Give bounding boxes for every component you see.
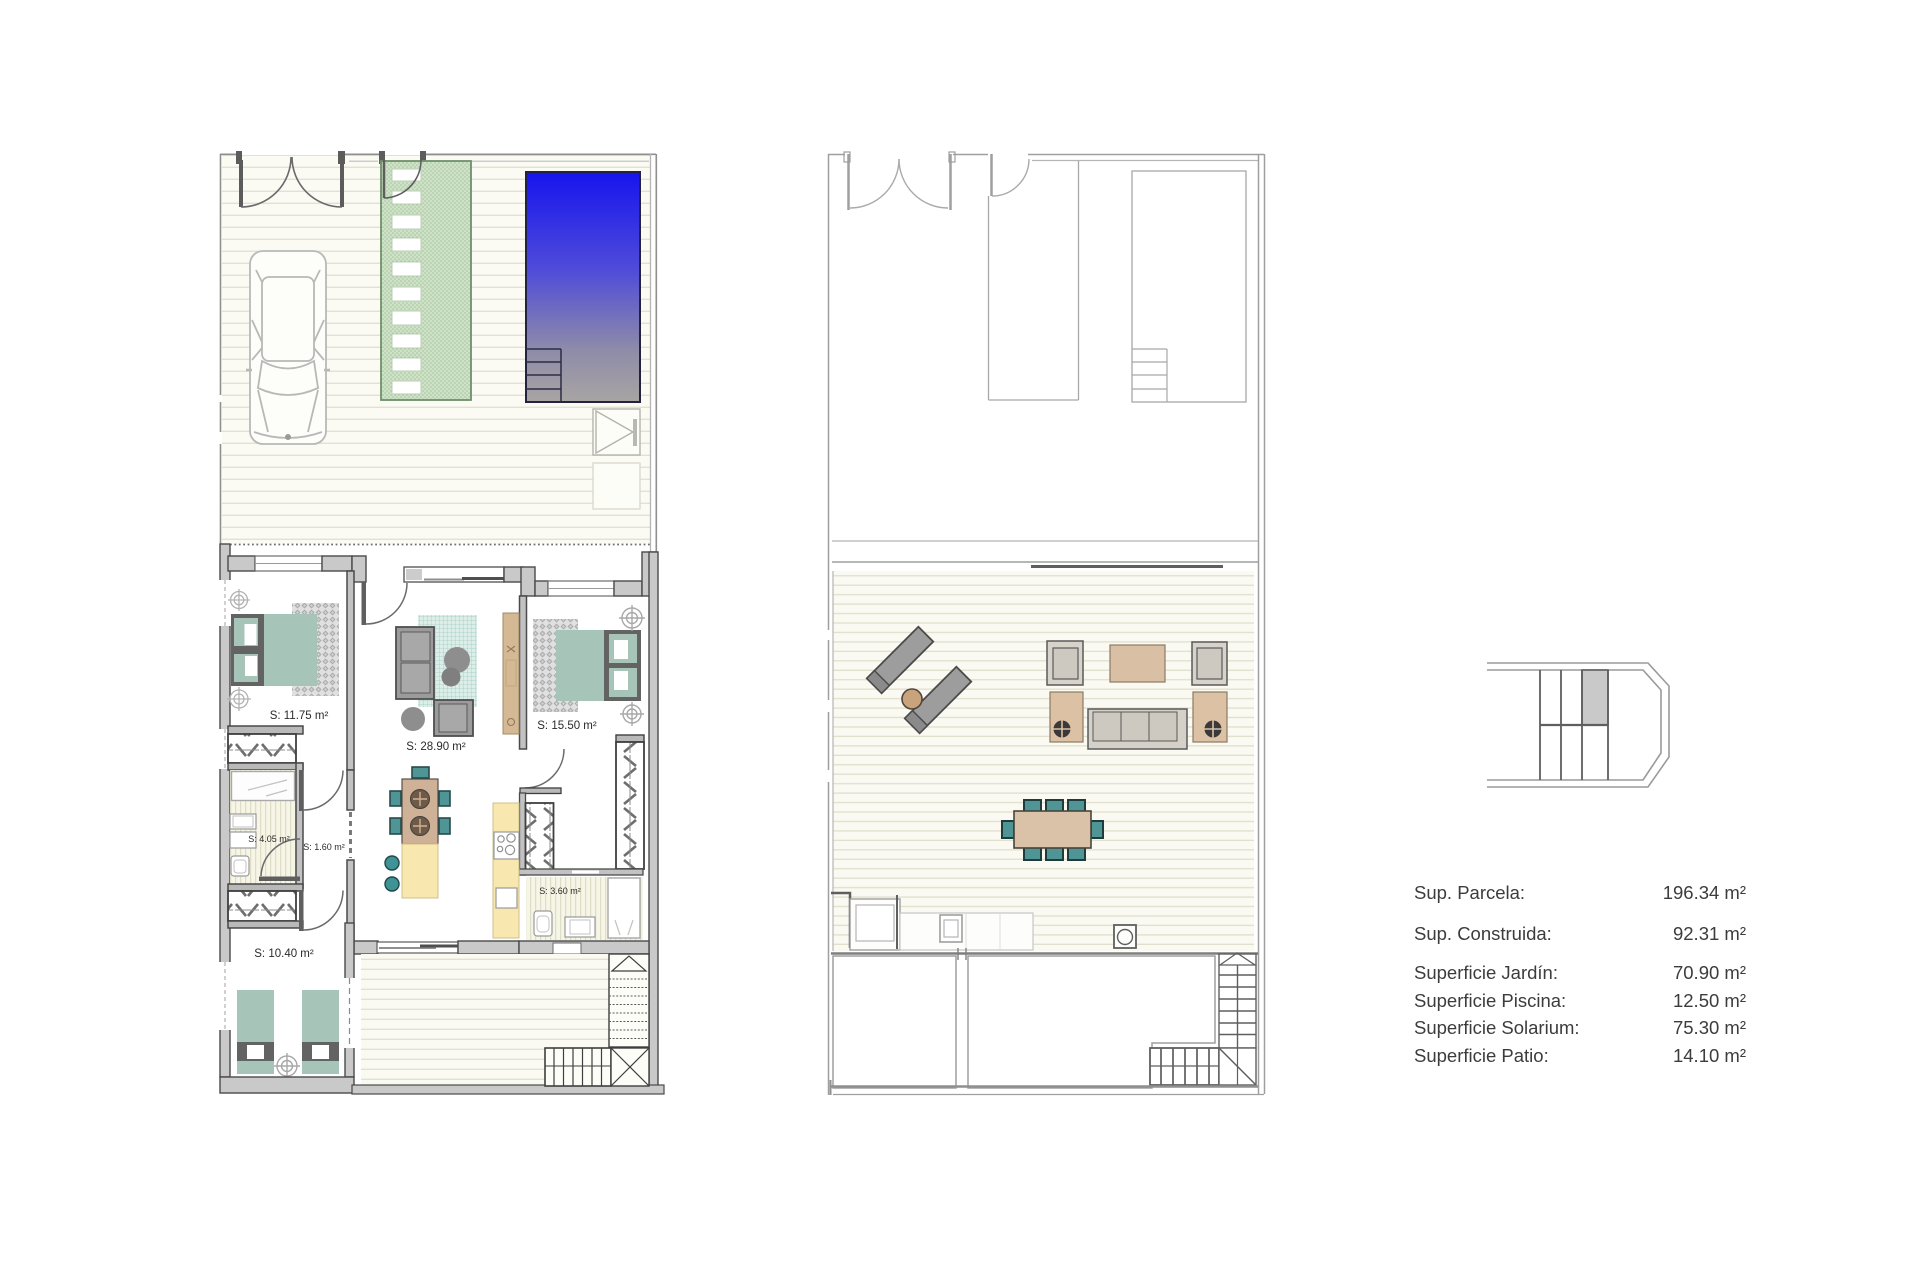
svg-text:75.30 m²: 75.30 m²	[1673, 1017, 1746, 1038]
svg-text:Sup. Construida:: Sup. Construida:	[1414, 923, 1552, 944]
svg-text:S: 15.50 m²: S: 15.50 m²	[537, 720, 597, 732]
svg-text:Superficie Solarium:: Superficie Solarium:	[1414, 1017, 1580, 1038]
svg-text:S: 28.90 m²: S: 28.90 m²	[406, 741, 466, 753]
svg-text:S: 4.05 m²: S: 4.05 m²	[248, 834, 290, 844]
svg-text:Superficie Piscina:: Superficie Piscina:	[1414, 990, 1566, 1011]
svg-text:196.34 m²: 196.34 m²	[1663, 882, 1746, 903]
svg-text:Sup. Parcela:: Sup. Parcela:	[1414, 882, 1525, 903]
svg-text:S: 11.75 m²: S: 11.75 m²	[270, 710, 329, 722]
svg-text:S: 1.60 m²: S: 1.60 m²	[303, 842, 345, 852]
svg-text:Superficie Jardín:: Superficie Jardín:	[1414, 962, 1558, 983]
svg-text:Superficie Patio:: Superficie Patio:	[1414, 1045, 1549, 1066]
svg-text:70.90 m²: 70.90 m²	[1673, 962, 1746, 983]
svg-text:S: 10.40 m²: S: 10.40 m²	[254, 948, 314, 960]
svg-text:S: 3.60 m²: S: 3.60 m²	[539, 886, 581, 896]
svg-text:14.10 m²: 14.10 m²	[1673, 1045, 1746, 1066]
svg-text:92.31 m²: 92.31 m²	[1673, 923, 1746, 944]
svg-text:12.50 m²: 12.50 m²	[1673, 990, 1746, 1011]
